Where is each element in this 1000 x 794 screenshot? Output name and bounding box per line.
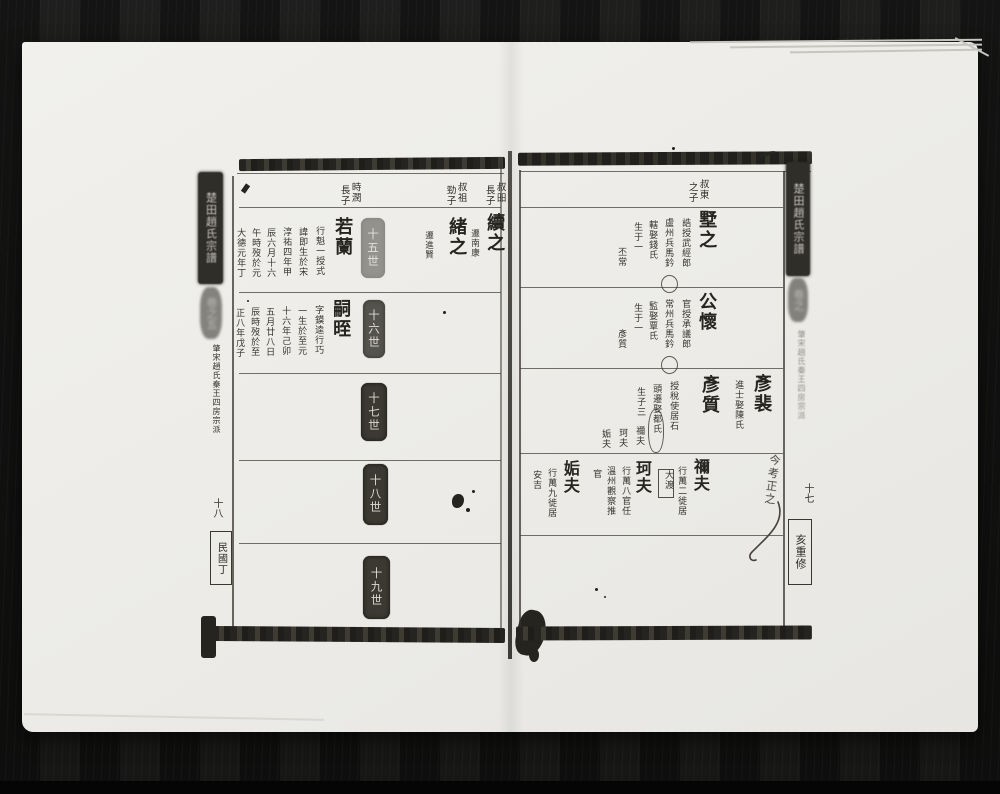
relation-label: 叔昍 bbox=[494, 182, 505, 208]
rule-line bbox=[520, 207, 783, 208]
entry-name: 彥質 bbox=[699, 375, 719, 433]
entry-detail-column: 官授承議郎 bbox=[680, 299, 690, 369]
right-spine-section-title: 肇宋趙氏秦王四房宗派 bbox=[793, 330, 805, 448]
left-spine-volume: 卷之五 bbox=[200, 287, 222, 339]
right-page-inner-border bbox=[519, 170, 521, 628]
entry-name: 嗣晊 bbox=[330, 299, 350, 361]
entry-detail-column: 丕常 bbox=[616, 247, 626, 279]
relation-label: 叔東 bbox=[697, 179, 708, 205]
entry-detail-column: 彥質 bbox=[616, 329, 626, 361]
entry-detail-column: 行萬八官任 bbox=[620, 466, 630, 530]
entry-detail-column: 生于一 bbox=[632, 303, 642, 345]
right-spine-volume: 卷之 bbox=[788, 278, 808, 322]
rule-line bbox=[239, 543, 501, 544]
entry-detail-column: 安吉 bbox=[531, 470, 541, 498]
entry-detail-column: 大德元年丁 bbox=[235, 228, 245, 298]
left-page-top-border bbox=[239, 157, 505, 171]
rule-line bbox=[520, 453, 783, 454]
generation-stamp: 十九世 bbox=[363, 556, 390, 619]
ink-speck bbox=[472, 490, 475, 493]
entry-name: 姤夫 bbox=[561, 460, 579, 508]
left-edition-box: 民國丁 bbox=[210, 531, 232, 585]
son-name: 禰夫 bbox=[634, 426, 644, 452]
center-fold-line bbox=[508, 151, 512, 659]
photo-of-genealogy-book: 楚田趙氏宗譜 卷之五 肇宋趙氏秦王四房宗派 十八 民國丁 叔昍 長子 叔祖 勁子… bbox=[0, 0, 1000, 794]
relation-label: 之子 bbox=[686, 182, 697, 208]
entry-detail-column: 行魁一授式 bbox=[314, 226, 324, 296]
entry-name: 彥裴 bbox=[751, 374, 771, 430]
entry-detail-column: 行萬九徙居 bbox=[546, 468, 556, 532]
left-spine-section-title: 肇宋趙氏秦王四房宗派 bbox=[206, 344, 220, 496]
relation-label: 叔祖 bbox=[455, 182, 466, 208]
son-name: 珂夫 bbox=[617, 428, 627, 454]
entry-name: 緒之 bbox=[446, 217, 466, 275]
entry-detail-column: 官 bbox=[591, 469, 601, 485]
entry-name: 珂夫 bbox=[633, 460, 651, 508]
ink-blot bbox=[529, 648, 539, 662]
entry-name: 若蘭 bbox=[332, 217, 352, 281]
entry-note: 遷進賢 bbox=[423, 231, 433, 275]
relation-label: 勁子 bbox=[444, 185, 455, 211]
entry-detail-column: 進士娶陳氏 bbox=[733, 380, 743, 446]
entry-detail-column: 一生於至元 bbox=[296, 306, 306, 374]
rule-line bbox=[520, 368, 783, 369]
entry-detail-column: 五月廿八日 bbox=[264, 307, 274, 375]
rule-line bbox=[239, 460, 501, 461]
entry-name: 禰夫 bbox=[691, 458, 709, 506]
pen-circle-mark bbox=[648, 409, 664, 453]
rule-line bbox=[237, 173, 504, 174]
handwriting-flourish bbox=[742, 500, 797, 570]
boxed-note: 大渡 bbox=[658, 469, 674, 498]
pen-circle-mark bbox=[661, 356, 678, 374]
relation-label: 時潤 bbox=[349, 182, 360, 208]
entry-detail-column: 字鏌逵行巧 bbox=[313, 305, 323, 373]
left-page-bottom-border bbox=[212, 626, 505, 643]
left-page-inner-border bbox=[232, 176, 234, 628]
rule-line bbox=[239, 292, 501, 293]
entry-detail-column: 正八年戊子 bbox=[234, 308, 244, 376]
entry-note: 遷南康 bbox=[469, 229, 479, 273]
ink-speck bbox=[247, 300, 249, 302]
left-page-number: 十八 bbox=[207, 498, 222, 528]
background-edge bbox=[0, 781, 1000, 794]
relation-label: 長子 bbox=[338, 185, 349, 211]
entry-detail-column: 淳祐四年甲 bbox=[281, 227, 291, 297]
entry-detail-column: 生子三 bbox=[635, 387, 645, 427]
left-spine-title-block: 楚田趙氏宗譜 bbox=[198, 172, 223, 284]
son-name: 姤夫 bbox=[600, 429, 610, 455]
entry-detail-column: 十六年己卯 bbox=[280, 306, 290, 374]
right-page-bottom-border bbox=[516, 625, 812, 640]
pen-circle-mark bbox=[661, 275, 678, 293]
rule-line bbox=[520, 171, 811, 172]
entry-detail-column: 諱即生於宋 bbox=[297, 227, 307, 297]
relation-label: 長子 bbox=[483, 185, 494, 211]
entry-detail-column: 午時歿於元 bbox=[250, 228, 260, 298]
generation-stamp: 十五世 bbox=[361, 218, 385, 278]
entry-detail-column: 授稅使居石 bbox=[668, 381, 678, 445]
rule-line bbox=[520, 287, 783, 288]
entry-detail-column: 行萬二徙居 bbox=[676, 466, 686, 530]
entry-detail-column: 辰時歿於至 bbox=[249, 307, 259, 375]
entry-name: 續之 bbox=[484, 213, 504, 271]
ink-speck bbox=[672, 147, 675, 150]
right-page-number: 十七 bbox=[800, 483, 813, 511]
entry-detail-column: 監娶覃氏 bbox=[647, 301, 657, 359]
rule-line bbox=[239, 373, 501, 374]
entry-name: 公懷 bbox=[696, 292, 716, 348]
entry-detail-column: 誥授武經郎 bbox=[680, 218, 690, 288]
generation-stamp: 十六世 bbox=[363, 300, 385, 358]
entry-detail-column: 溫州觀察推 bbox=[605, 466, 615, 530]
ink-speck bbox=[466, 508, 470, 512]
ink-speck bbox=[595, 588, 598, 591]
ink-speck bbox=[604, 596, 606, 598]
generation-stamp: 十七世 bbox=[361, 383, 387, 441]
generation-stamp: 十八世 bbox=[363, 464, 388, 525]
entry-detail-column: 生于一 bbox=[632, 222, 642, 264]
entry-detail-column: 轄娶錢氏 bbox=[647, 220, 657, 278]
ink-speck bbox=[443, 311, 446, 314]
entry-detail-column: 辰六月十六 bbox=[265, 228, 275, 298]
right-spine-title-block: 楚田趙氏宗譜 bbox=[786, 162, 810, 276]
entry-name: 墅之 bbox=[696, 210, 716, 268]
